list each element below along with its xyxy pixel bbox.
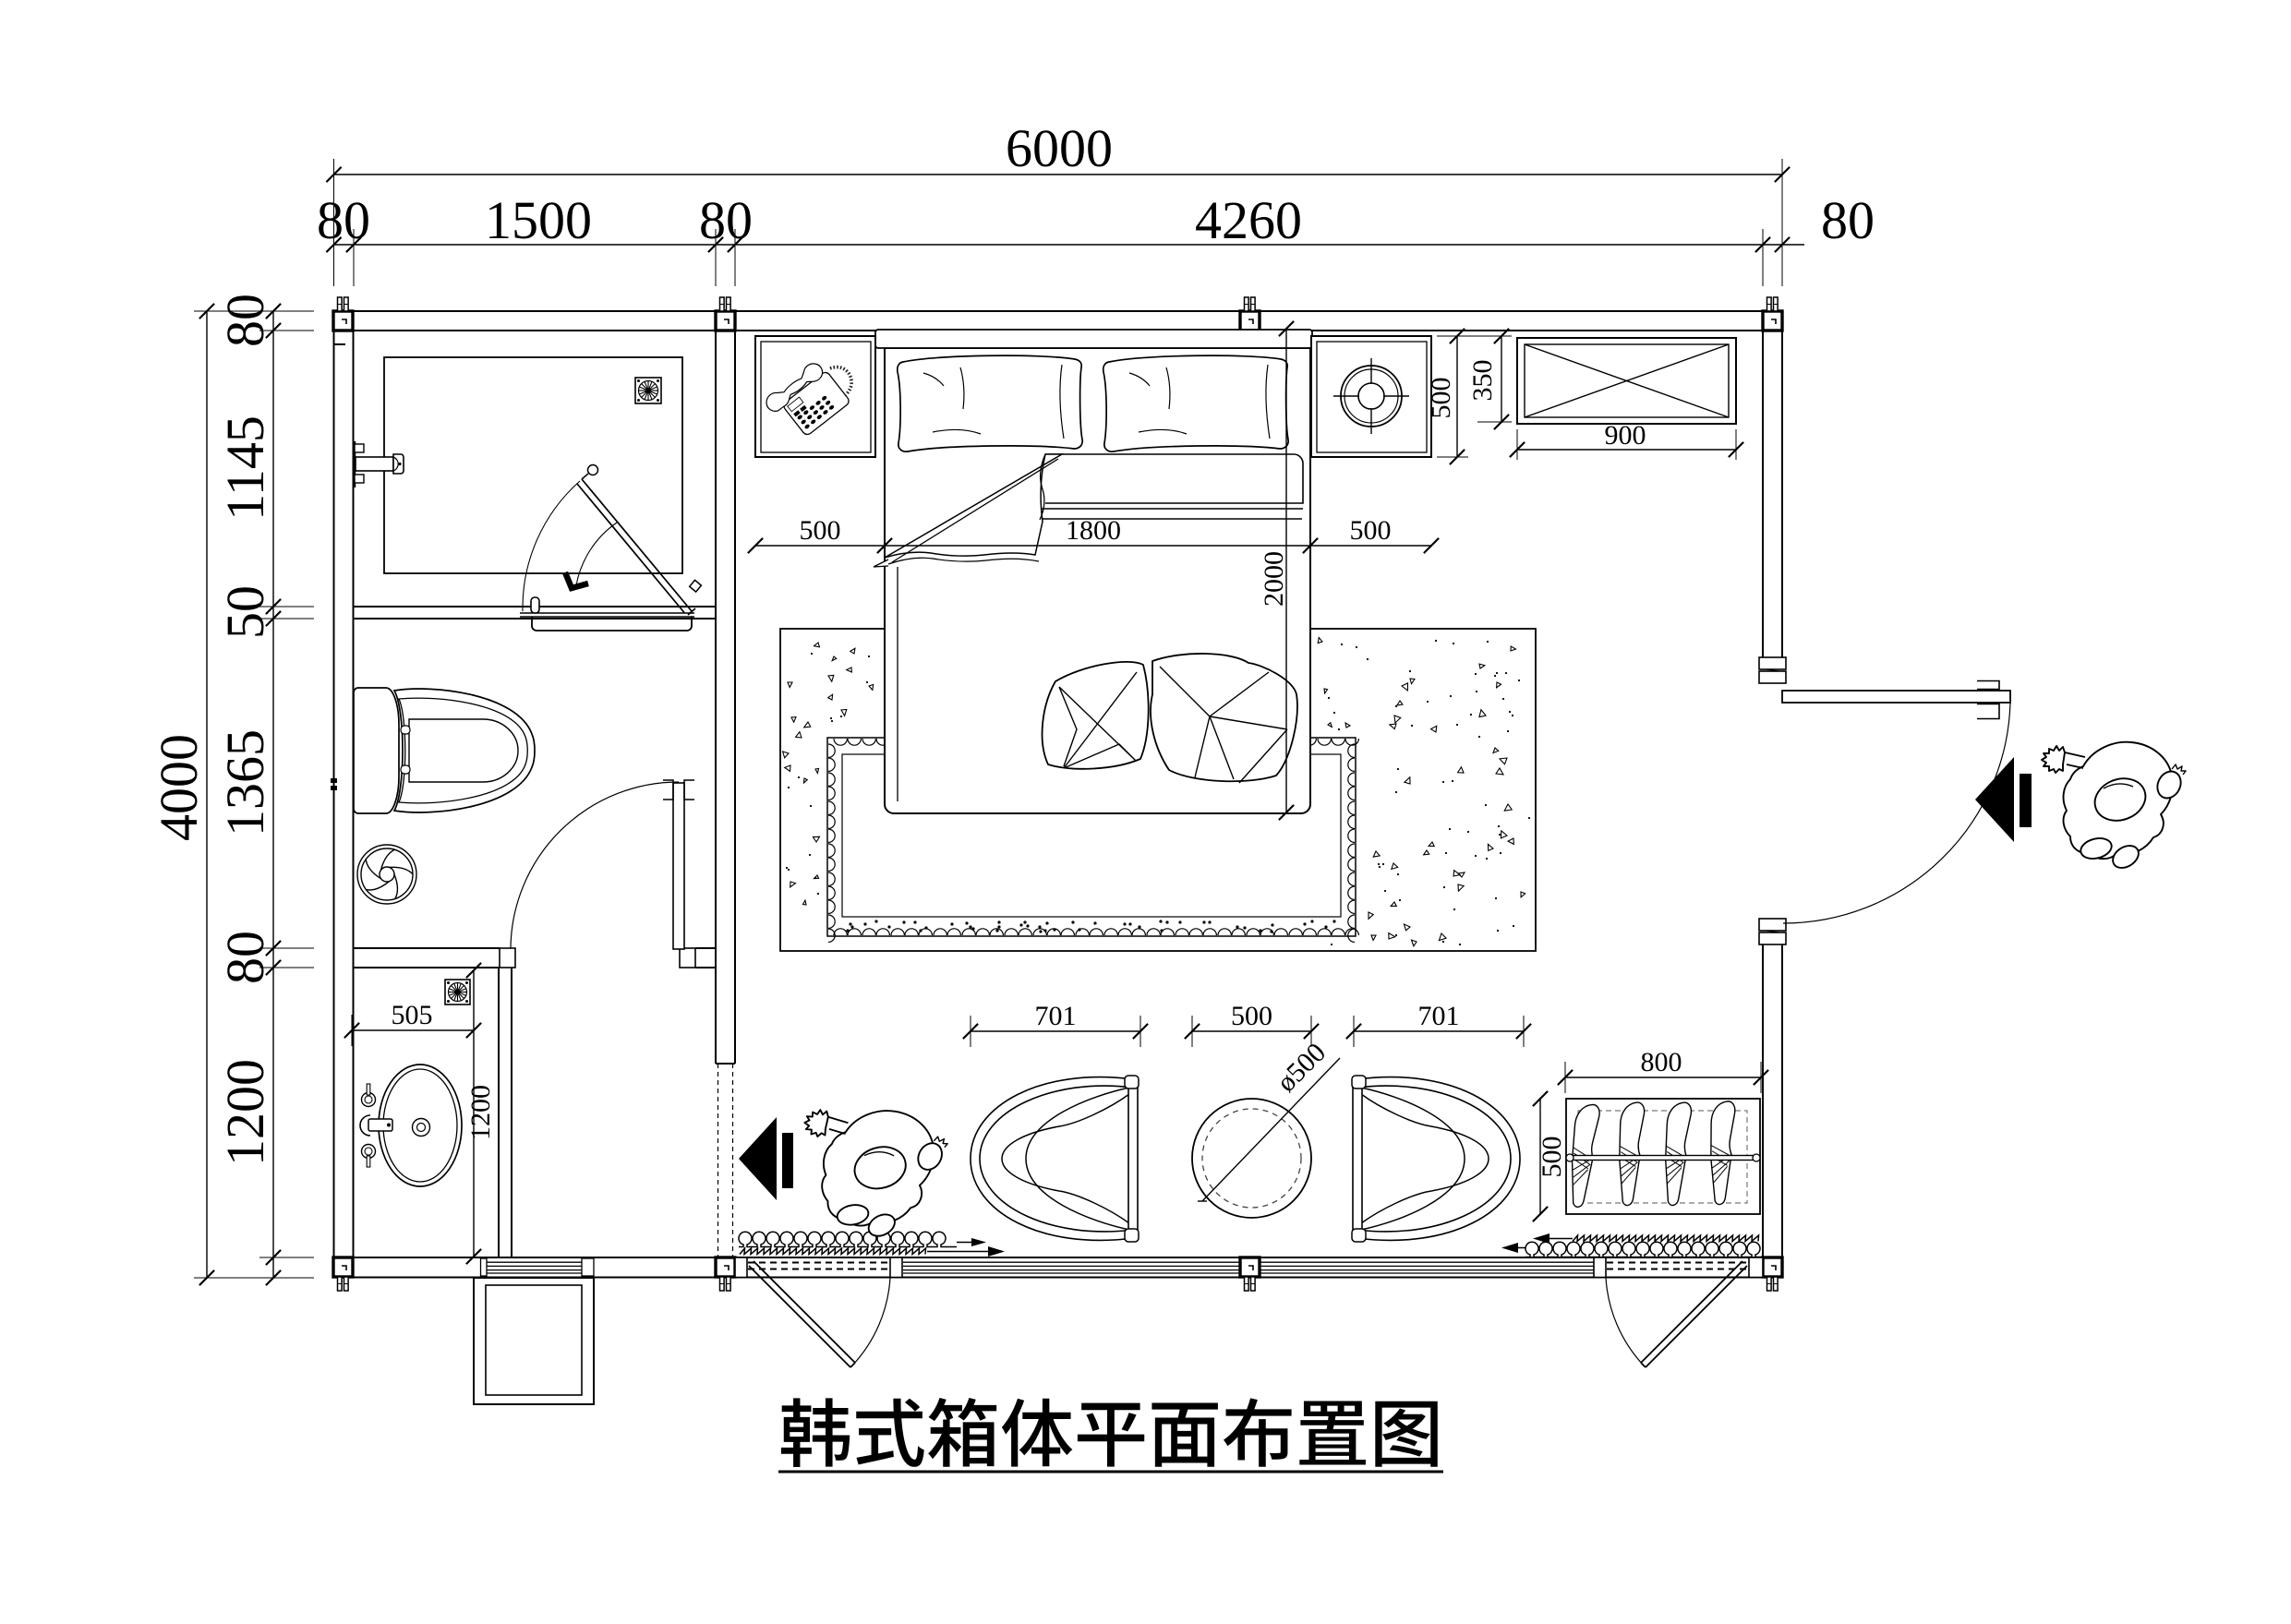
svg-text:80: 80 (317, 190, 370, 250)
svg-text:1500: 1500 (485, 190, 592, 250)
svg-text:1200: 1200 (465, 1085, 496, 1140)
svg-text:500: 500 (1231, 1001, 1272, 1031)
svg-text:701: 701 (1418, 1001, 1460, 1031)
svg-text:500: 500 (1426, 378, 1456, 419)
svg-text:80: 80 (215, 294, 275, 347)
svg-text:4000: 4000 (149, 734, 209, 841)
svg-text:1200: 1200 (215, 1059, 275, 1166)
svg-text:50: 50 (215, 585, 275, 639)
svg-text:900: 900 (1605, 420, 1646, 451)
svg-text:2000: 2000 (1259, 551, 1289, 607)
svg-text:1800: 1800 (1066, 515, 1121, 546)
svg-text:500: 500 (800, 515, 841, 546)
svg-text:500: 500 (1537, 1137, 1567, 1178)
svg-text:701: 701 (1035, 1001, 1077, 1031)
svg-text:800: 800 (1641, 1047, 1682, 1077)
svg-text:4260: 4260 (1195, 190, 1302, 250)
svg-text:500: 500 (1350, 515, 1392, 546)
svg-text:6000: 6000 (1006, 118, 1113, 178)
svg-text:80: 80 (1821, 190, 1875, 250)
svg-text:505: 505 (392, 1000, 433, 1030)
svg-text:350: 350 (1467, 360, 1498, 402)
svg-text:80: 80 (699, 190, 753, 250)
svg-text:80: 80 (215, 931, 275, 984)
svg-text:1365: 1365 (215, 729, 275, 836)
svg-text:1145: 1145 (215, 415, 275, 521)
